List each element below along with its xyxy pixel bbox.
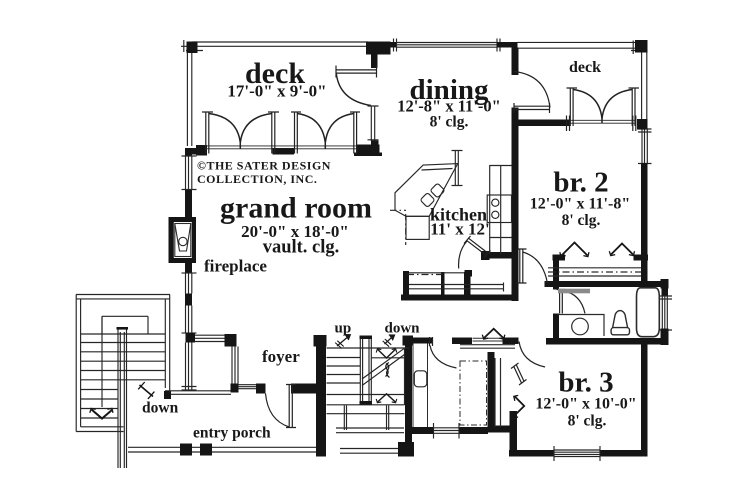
svg-text:fireplace: fireplace [204, 257, 267, 276]
svg-text:down: down [385, 321, 421, 337]
svg-text:©THE SATER DESIGN: ©THE SATER DESIGN [197, 159, 331, 173]
svg-text:11' x 12': 11' x 12' [430, 220, 490, 239]
svg-text:up: up [335, 321, 352, 337]
svg-text:vault. clg.: vault. clg. [263, 238, 340, 258]
svg-text:8' clg.: 8' clg. [568, 413, 607, 430]
svg-text:br. 2: br. 2 [553, 167, 608, 199]
svg-text:grand room: grand room [220, 192, 372, 225]
svg-text:12'-0" x 10'-0": 12'-0" x 10'-0" [535, 396, 636, 413]
svg-text:down: down [142, 400, 179, 417]
svg-text:8' clg.: 8' clg. [430, 114, 469, 131]
svg-text:deck: deck [569, 59, 601, 76]
svg-text:8' clg.: 8' clg. [562, 212, 601, 229]
svg-text:17'-0" x 9'-0": 17'-0" x 9'-0" [227, 82, 326, 101]
svg-text:12'-0" x 11'-8": 12'-0" x 11'-8" [530, 196, 630, 213]
svg-text:COLLECTION, INC.: COLLECTION, INC. [197, 172, 317, 186]
svg-text:foyer: foyer [262, 347, 300, 366]
svg-text:entry porch: entry porch [193, 425, 271, 442]
svg-text:br. 3: br. 3 [558, 367, 613, 399]
